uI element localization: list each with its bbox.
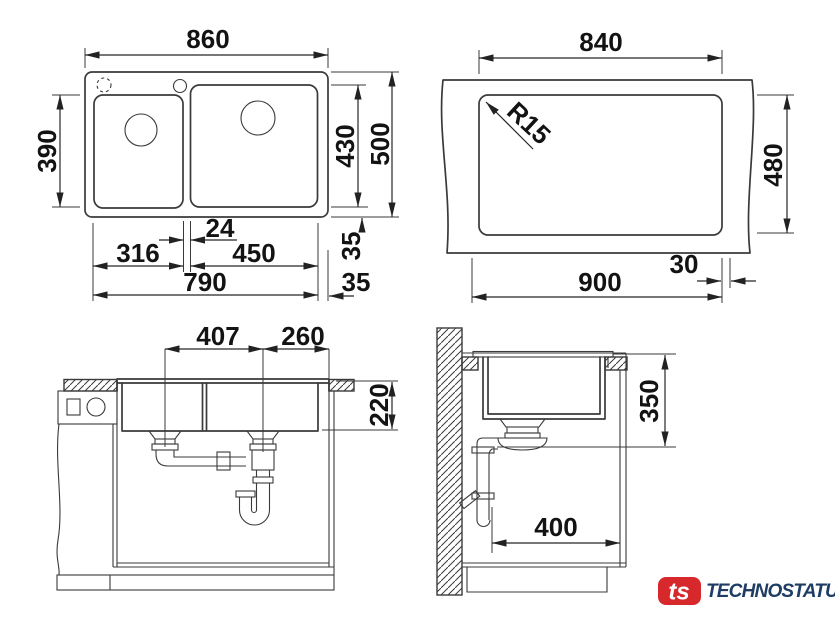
dim-450: 450	[232, 238, 275, 268]
dim-430: 430	[330, 124, 360, 167]
dim-350: 350	[634, 379, 664, 422]
dim-407: 407	[196, 321, 239, 351]
sink-top-view: 860 390 430 500 24 316 450 790 35 35	[32, 24, 399, 301]
technostatus-logo: ts TECHNOSTATUS	[658, 577, 835, 606]
right-drain-assembly	[236, 431, 279, 525]
left-drain-assembly	[149, 431, 246, 470]
front-dimension-texts: 407 260 220	[196, 321, 394, 427]
dim-860: 860	[186, 24, 229, 54]
dim-390: 390	[32, 129, 62, 172]
dim-24: 24	[206, 213, 235, 243]
sink-rim-section	[117, 379, 329, 391]
sink-flange	[473, 352, 613, 358]
cabinet-walls	[113, 391, 334, 575]
worktop-section-left	[64, 380, 117, 392]
dim-30: 30	[670, 249, 699, 279]
side-drain-assembly	[460, 419, 547, 527]
dim-900: 900	[578, 267, 621, 297]
dim-480: 480	[758, 143, 788, 186]
break-edge-left	[57, 424, 60, 575]
socket-round	[87, 398, 105, 416]
dim-220: 220	[364, 383, 394, 426]
cabinet-side	[462, 353, 626, 592]
dim-35-horizontal: 35	[342, 267, 371, 297]
logo-mark-text: ts	[668, 579, 689, 606]
plinth	[57, 575, 334, 590]
worktop-outline	[442, 80, 754, 253]
worktop-section-a	[462, 357, 478, 370]
logo-name-text: TECHNOSTATUS	[706, 581, 835, 602]
dim-500: 500	[365, 122, 395, 165]
bowls-section	[122, 383, 318, 431]
sink-dimension-drawing: 860 390 430 500 24 316 450 790 35 35	[0, 0, 835, 640]
worktop-cutout-view: 840 R15 480 900 30	[442, 27, 794, 303]
sink-outline	[85, 72, 328, 217]
dim-35-vertical: 35	[336, 232, 366, 261]
dim-316: 316	[116, 238, 159, 268]
technical-drawing-page: 860 390 430 500 24 316 450 790 35 35	[0, 0, 835, 640]
socket-square	[67, 399, 80, 415]
bowl-section-side	[483, 357, 605, 419]
dim-400: 400	[534, 512, 577, 542]
dim-790: 790	[183, 267, 226, 297]
front-section-view: 407 260 220	[57, 321, 398, 590]
side-section-view: 350 400	[437, 328, 676, 595]
dim-840: 840	[579, 27, 622, 57]
wall-section	[437, 328, 462, 595]
dim-260: 260	[281, 321, 324, 351]
